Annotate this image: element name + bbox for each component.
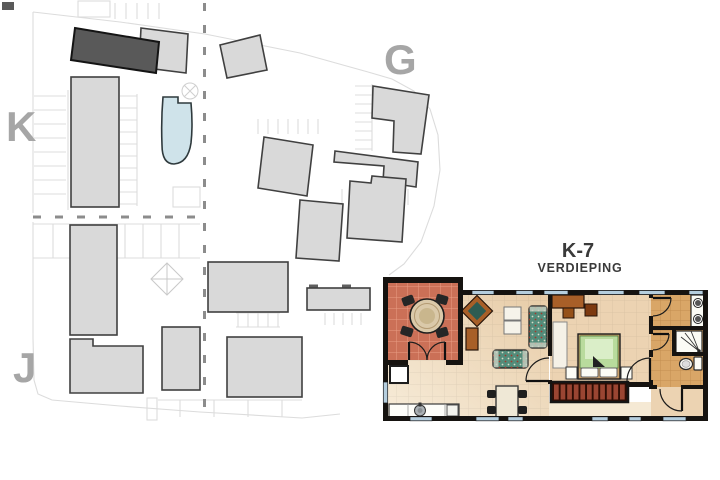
building	[70, 225, 117, 335]
faucet-icon	[419, 403, 422, 407]
building	[220, 35, 267, 78]
cabinet	[504, 307, 521, 320]
building	[347, 176, 406, 242]
plan-page: K G J K-7 VERDIEPING	[0, 0, 720, 480]
shaft-recess	[390, 366, 408, 383]
sink-icon	[694, 299, 703, 308]
kitchen-counter	[389, 403, 459, 418]
building	[307, 288, 370, 310]
sideboard	[466, 328, 478, 350]
dresser	[585, 304, 597, 316]
fountain-icon	[182, 83, 198, 99]
wardrobe	[553, 322, 567, 368]
table-center	[419, 308, 435, 324]
window	[544, 291, 568, 295]
window	[472, 291, 494, 295]
hall-floor	[549, 402, 651, 418]
pillow	[600, 368, 617, 377]
floor-plan: K-7 VERDIEPING	[383, 240, 708, 421]
site-corner-mark	[2, 2, 14, 10]
chair	[487, 406, 496, 414]
storage-floor	[651, 387, 705, 418]
sector-label-j: J	[13, 344, 36, 391]
building	[372, 86, 429, 154]
building	[71, 77, 119, 207]
buildings	[70, 28, 429, 397]
window	[516, 291, 533, 295]
unit-title: K-7	[562, 240, 594, 262]
pool	[162, 97, 192, 164]
floor-subtitle: VERDIEPING	[537, 261, 622, 275]
window	[410, 417, 432, 421]
pillow	[581, 368, 598, 377]
building	[70, 339, 143, 393]
chair	[518, 406, 527, 414]
sector-label-k: K	[6, 103, 36, 150]
window	[689, 291, 703, 295]
cabinet	[504, 321, 521, 334]
sector-label-g: G	[384, 36, 417, 83]
stairs	[551, 382, 628, 402]
nightstand	[566, 367, 577, 379]
chair	[487, 390, 496, 398]
stove-icon	[447, 405, 458, 416]
window	[598, 291, 624, 295]
building	[162, 327, 200, 390]
plan-canvas: K G J K-7 VERDIEPING	[0, 0, 720, 480]
site-plan: K G J	[2, 1, 440, 420]
window	[476, 417, 499, 421]
window	[508, 417, 523, 421]
window	[383, 382, 387, 403]
sofa-horizontal	[493, 350, 528, 368]
desk	[552, 295, 584, 308]
window	[629, 417, 641, 421]
building	[258, 137, 313, 196]
building	[296, 200, 343, 261]
window	[592, 417, 608, 421]
dining-table	[496, 386, 518, 419]
building	[208, 262, 288, 312]
sink-icon	[694, 315, 703, 324]
desk-chair	[563, 308, 574, 318]
chair	[518, 390, 527, 398]
sofa-vertical	[529, 306, 547, 348]
diamond-marker-icon	[151, 263, 183, 295]
bed	[578, 334, 620, 379]
building	[227, 337, 302, 397]
window	[663, 417, 686, 421]
window	[639, 291, 665, 295]
shower-icon	[676, 331, 702, 353]
